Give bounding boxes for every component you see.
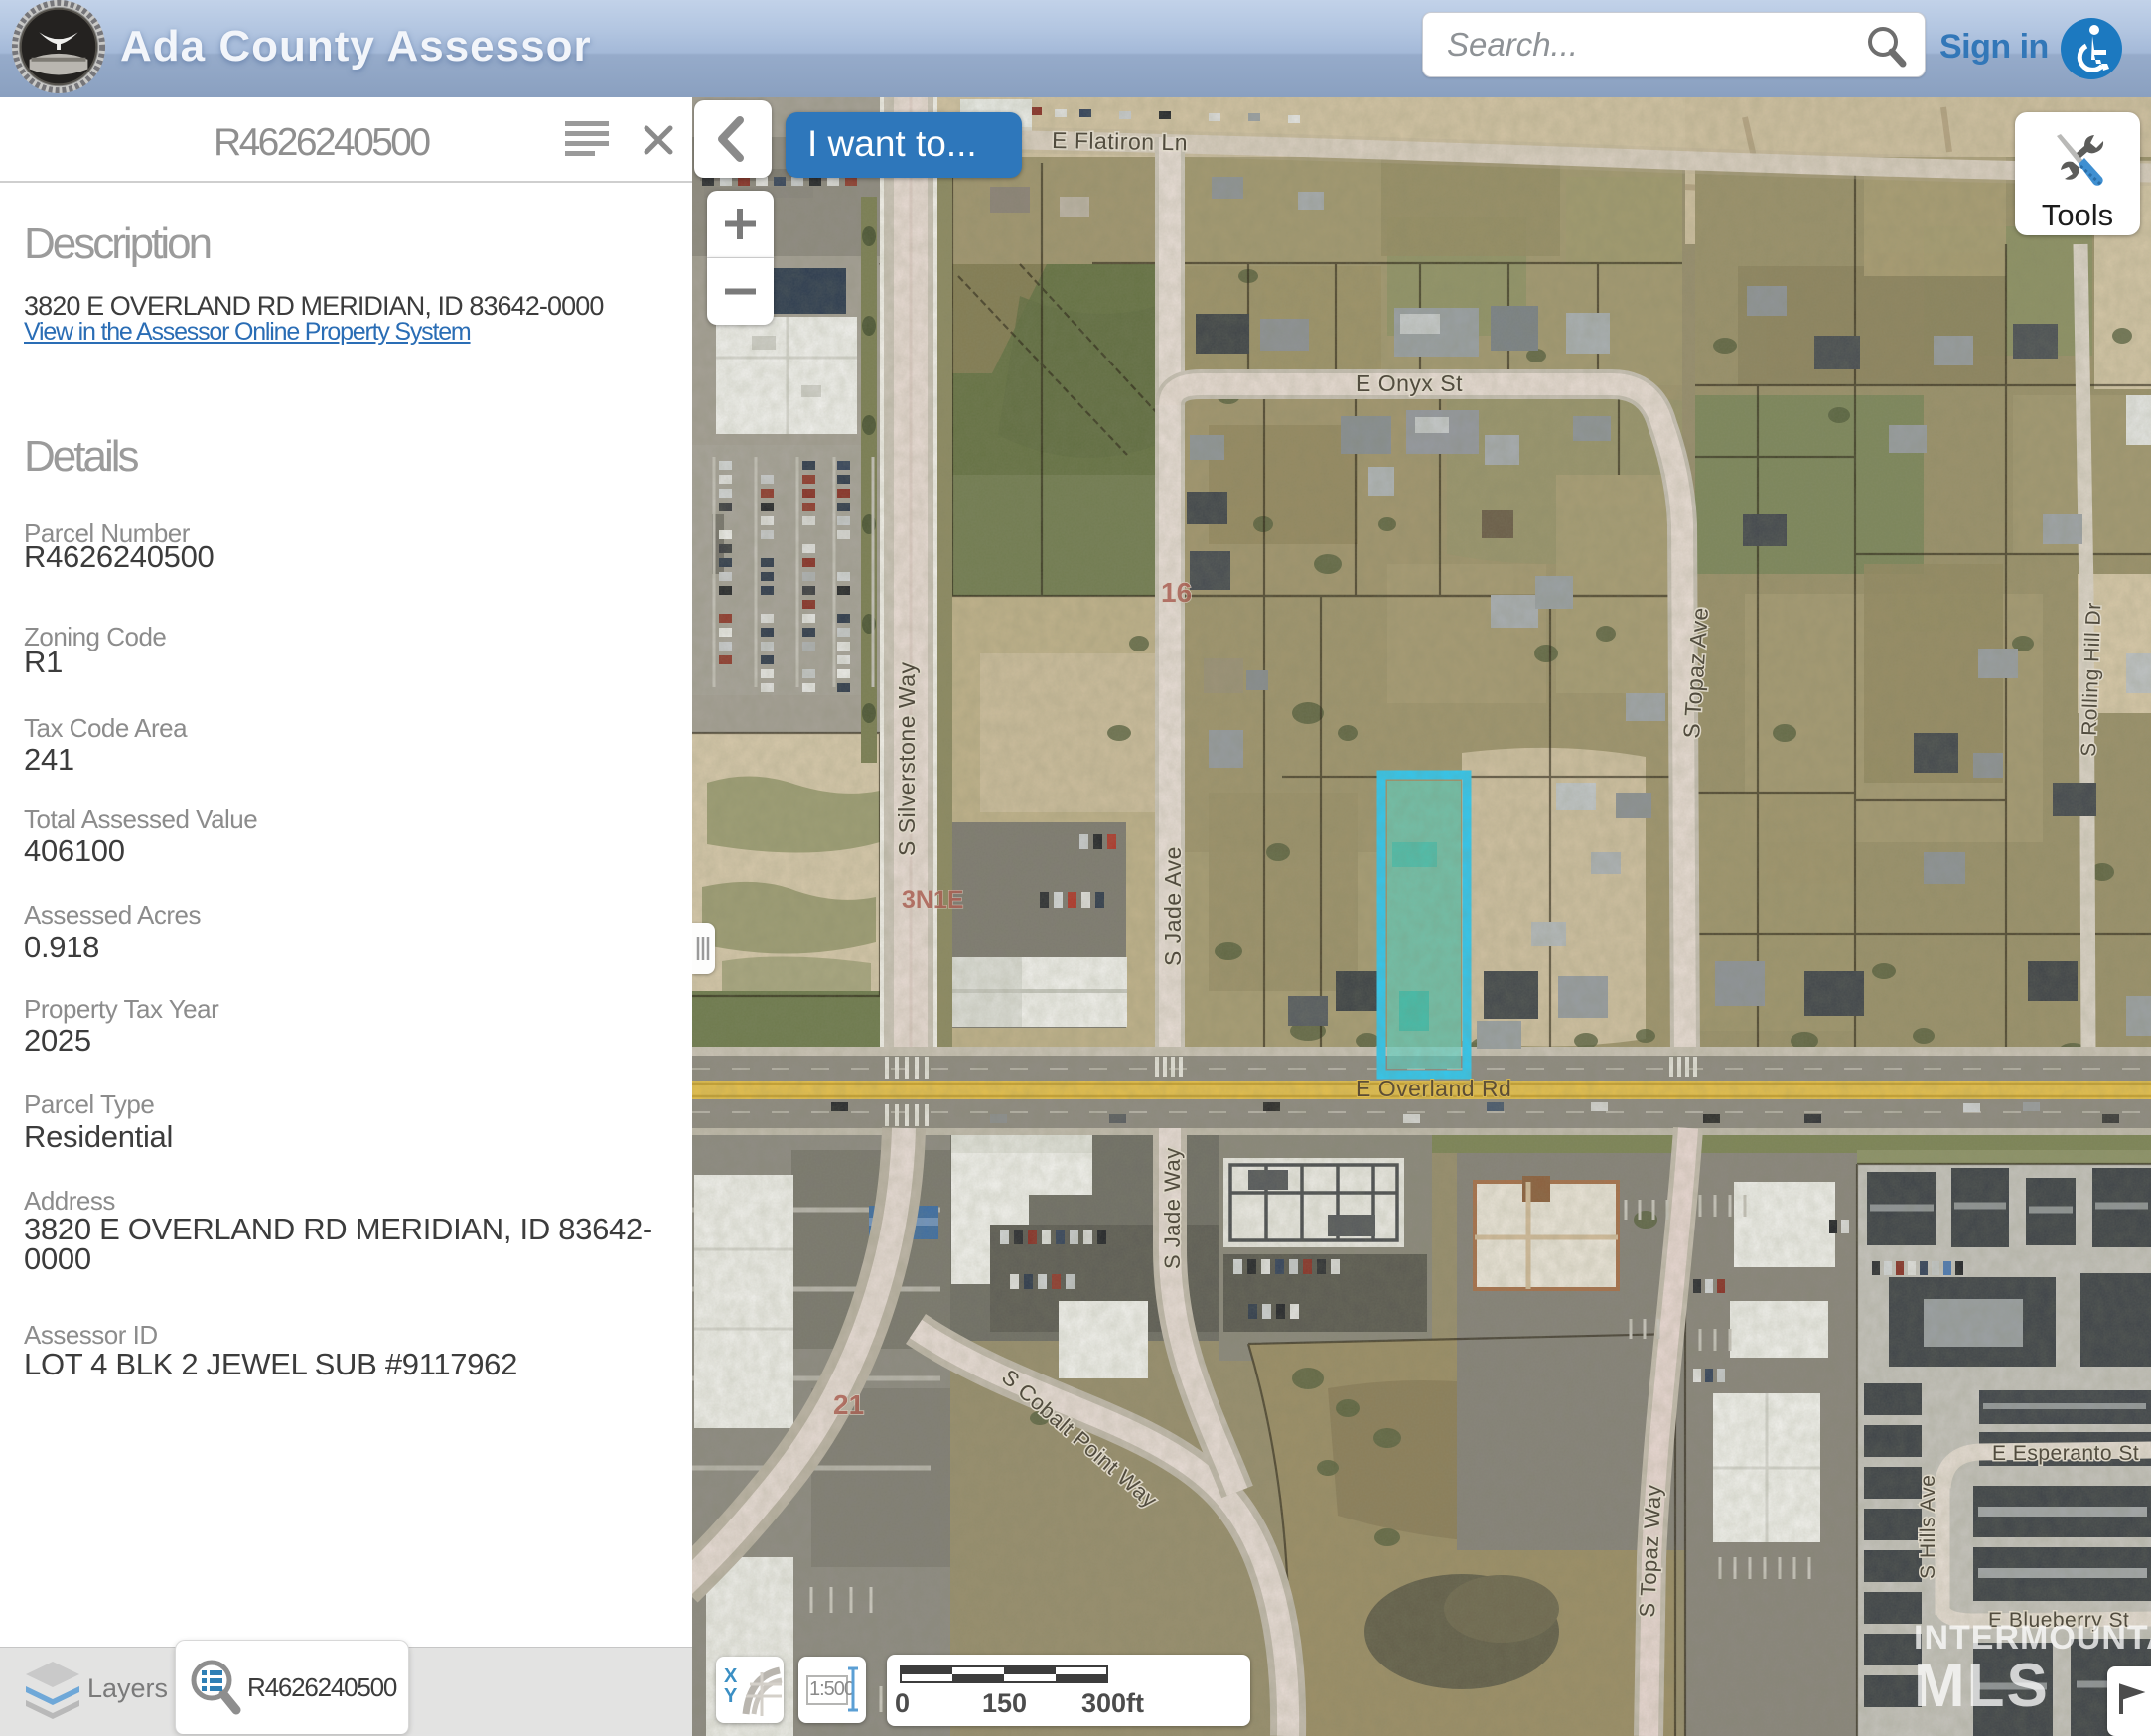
svg-text:Y: Y — [724, 1685, 738, 1707]
svg-text:150: 150 — [982, 1688, 1027, 1718]
svg-text:0: 0 — [895, 1688, 910, 1718]
svg-text:X: X — [724, 1665, 738, 1687]
svg-text:300ft: 300ft — [1081, 1688, 1144, 1718]
